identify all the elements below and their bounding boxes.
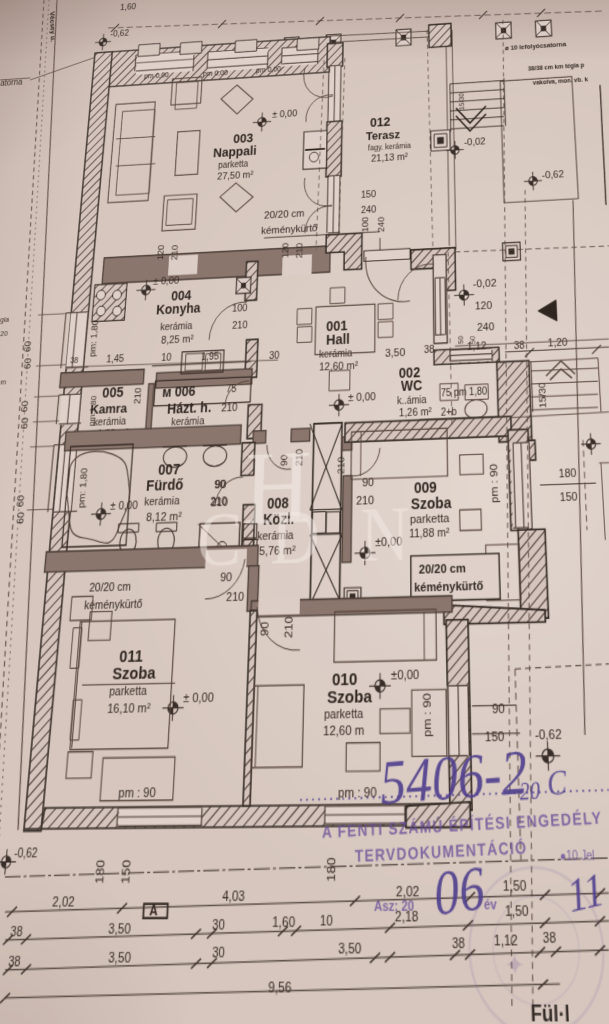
svg-text:210: 210 (132, 387, 143, 405)
svg-text:012: 012 (370, 116, 390, 131)
svg-text:009: 009 (414, 480, 437, 497)
svg-text:8,12 m²: 8,12 m² (146, 509, 182, 524)
svg-text:3,50: 3,50 (338, 939, 362, 956)
svg-text:90: 90 (215, 478, 227, 492)
svg-text:50: 50 (470, 336, 477, 345)
svg-text:30: 30 (212, 917, 226, 934)
svg-text:atorna: atorna (0, 77, 24, 88)
svg-text:11: 11 (564, 864, 609, 924)
svg-text:20: 20 (518, 777, 541, 806)
svg-text:38: 38 (452, 934, 466, 951)
svg-text:150: 150 (119, 860, 133, 884)
svg-text:± 0,00: ± 0,00 (110, 498, 139, 512)
svg-text:60: 60 (22, 357, 33, 369)
svg-text:90: 90 (258, 621, 271, 636)
svg-text:2,02: 2,02 (52, 894, 76, 911)
svg-text:20/20 cm: 20/20 cm (264, 208, 305, 222)
svg-text:gla: gla (0, 316, 10, 325)
svg-text:150: 150 (361, 189, 377, 200)
svg-text:210: 210 (294, 242, 304, 259)
svg-text:-0,02: -0,02 (464, 136, 486, 149)
svg-text:± 0,00: ± 0,00 (153, 274, 180, 287)
svg-text:11,88 m²: 11,88 m² (409, 525, 450, 540)
svg-text:Asz: 20: Asz: 20 (374, 897, 415, 914)
svg-text:N: N (360, 491, 410, 579)
svg-text:210: 210 (282, 616, 295, 638)
svg-text:Vécsey u.: Vécsey u. (48, 11, 56, 43)
svg-text:1,26 m²: 1,26 m² (399, 406, 432, 419)
svg-text:30: 30 (212, 944, 226, 961)
svg-text:180: 180 (558, 466, 577, 480)
svg-text:1,45: 1,45 (106, 353, 125, 365)
svg-text:pm : 90: pm : 90 (420, 693, 433, 738)
svg-text:м 006: м 006 (162, 384, 196, 401)
svg-text:30: 30 (269, 350, 280, 362)
svg-text:●10 Jel: ●10 Jel (560, 848, 596, 863)
svg-text:pm: 1,80: pm: 1,80 (76, 467, 90, 508)
svg-text:Nappali: Nappali (213, 144, 257, 160)
svg-text:kerámia: kerámia (160, 320, 193, 333)
svg-text:✦: ✦ (504, 949, 525, 982)
svg-text:180: 180 (324, 857, 338, 882)
svg-text:9,56: 9,56 (268, 979, 292, 997)
svg-text:38: 38 (70, 356, 79, 365)
svg-text:38/38 cm km tégla p: 38/38 cm km tégla p (528, 63, 585, 73)
svg-text:005: 005 (102, 386, 124, 402)
svg-text:210: 210 (336, 456, 347, 475)
svg-text:10: 10 (161, 352, 172, 364)
svg-text:2+b: 2+b (441, 406, 457, 418)
svg-text:-0,62: -0,62 (535, 727, 562, 743)
svg-text:D: D (269, 495, 320, 583)
svg-text:12,60 m²: 12,60 m² (319, 359, 358, 373)
svg-text:parketta: parketta (109, 683, 148, 699)
svg-text:007: 007 (158, 462, 181, 479)
svg-text:± 0,00: ± 0,00 (348, 389, 376, 403)
svg-text:100: 100 (360, 216, 370, 233)
svg-text:100: 100 (232, 303, 248, 315)
svg-text:Szoba: Szoba (327, 685, 372, 707)
svg-text:120: 120 (475, 299, 493, 312)
svg-text:60: 60 (15, 494, 27, 507)
svg-text:60: 60 (22, 340, 33, 352)
svg-text:±0,00: ±0,00 (391, 667, 419, 683)
svg-text:150: 150 (559, 489, 578, 504)
svg-text:parketta: parketta (410, 511, 450, 526)
svg-text:60: 60 (19, 417, 30, 430)
svg-text:27,50 m²: 27,50 m² (217, 169, 254, 182)
svg-text:C: C (546, 763, 569, 803)
svg-text:Konyha: Konyha (156, 302, 202, 319)
svg-text:38: 38 (10, 923, 24, 940)
svg-text:90: 90 (492, 700, 505, 716)
svg-text:3,50: 3,50 (385, 346, 405, 360)
svg-text:m: m (0, 378, 6, 387)
svg-text:5406-2: 5406-2 (379, 737, 530, 818)
svg-text:16,10 m²: 16,10 m² (107, 700, 151, 716)
svg-text:8,25 m²: 8,25 m² (161, 333, 194, 347)
svg-text:Hall: Hall (326, 333, 350, 349)
svg-text:3,50: 3,50 (108, 921, 132, 938)
svg-text:240: 240 (361, 204, 377, 215)
svg-text:kerámia: kerámia (144, 494, 181, 509)
svg-text:WC: WC (401, 378, 423, 394)
svg-text:120: 120 (280, 242, 290, 259)
svg-text:ø 10 lefolyócsatorna: ø 10 lefolyócsatorna (505, 42, 567, 53)
svg-text:38: 38 (8, 953, 22, 970)
svg-text:1,50: 1,50 (505, 902, 529, 919)
svg-text:90: 90 (362, 476, 374, 490)
svg-text:k..ámia: k..ámia (397, 394, 427, 407)
svg-text:pm : 90: pm : 90 (118, 785, 156, 801)
svg-text:1,12: 1,12 (494, 932, 518, 949)
svg-text:1,20: 1,20 (548, 336, 569, 350)
svg-text:10: 10 (320, 911, 333, 928)
svg-text:C: C (195, 497, 243, 584)
svg-text:1,60: 1,60 (120, 2, 137, 12)
svg-text:210: 210 (169, 244, 180, 261)
svg-text:240: 240 (376, 216, 386, 233)
svg-text:06: 06 (431, 855, 488, 931)
svg-text:38: 38 (543, 929, 557, 946)
svg-text:38: 38 (424, 344, 435, 356)
svg-text:4,03: 4,03 (222, 888, 245, 905)
svg-text:210: 210 (221, 401, 238, 415)
svg-text:parketta: parketta (324, 706, 364, 722)
svg-text:1,60: 1,60 (272, 913, 296, 930)
svg-text:kéménykürtő: kéménykürtő (261, 222, 318, 237)
svg-text:60: 60 (15, 511, 27, 524)
svg-text:50: 50 (458, 336, 465, 345)
svg-text:Szoba: Szoba (112, 663, 157, 685)
svg-text:3,50: 3,50 (108, 948, 132, 965)
svg-text:-0,62: -0,62 (110, 28, 130, 39)
svg-text:± 0,00: ± 0,00 (272, 108, 298, 121)
svg-text:pm: 1,80: pm: 1,80 (87, 319, 100, 357)
svg-text:pm : 90: pm : 90 (487, 463, 500, 503)
svg-text:15/30: 15/30 (458, 92, 466, 110)
svg-text:Terasz: Terasz (366, 129, 400, 143)
svg-text:210: 210 (226, 589, 245, 604)
svg-text:kéménykürtő: kéménykürtő (414, 579, 484, 595)
svg-text:15/30: 15/30 (537, 381, 549, 408)
svg-text:kerámia: kerámia (93, 416, 127, 429)
svg-text:240: 240 (477, 320, 495, 333)
svg-text:60: 60 (19, 400, 30, 412)
svg-text:-0,62: -0,62 (542, 168, 565, 181)
svg-text:120: 120 (155, 244, 166, 261)
svg-text:A: A (149, 903, 159, 920)
svg-text:± 0,00: ± 0,00 (183, 689, 214, 705)
svg-text:1,95: 1,95 (201, 350, 220, 362)
svg-text:1,50: 1,50 (503, 877, 527, 894)
svg-text:210: 210 (232, 320, 248, 332)
svg-text:75 pm 1,80: 75 pm 1,80 (441, 385, 488, 399)
svg-text:-0,62: -0,62 (14, 846, 39, 861)
svg-text:12,60 m: 12,60 m (323, 723, 364, 739)
svg-text:38: 38 (514, 340, 526, 352)
svg-text:-0,02: -0,02 (473, 277, 497, 290)
svg-text:180: 180 (93, 860, 107, 884)
svg-text:20/20 cm: 20/20 cm (89, 580, 132, 595)
svg-text:Fül·l: Fül·l (530, 1000, 570, 1024)
svg-text:21,13 m²: 21,13 m² (371, 151, 408, 165)
svg-text:20/20 cm: 20/20 cm (419, 561, 466, 577)
svg-text:Fürdő: Fürdő (146, 478, 184, 495)
